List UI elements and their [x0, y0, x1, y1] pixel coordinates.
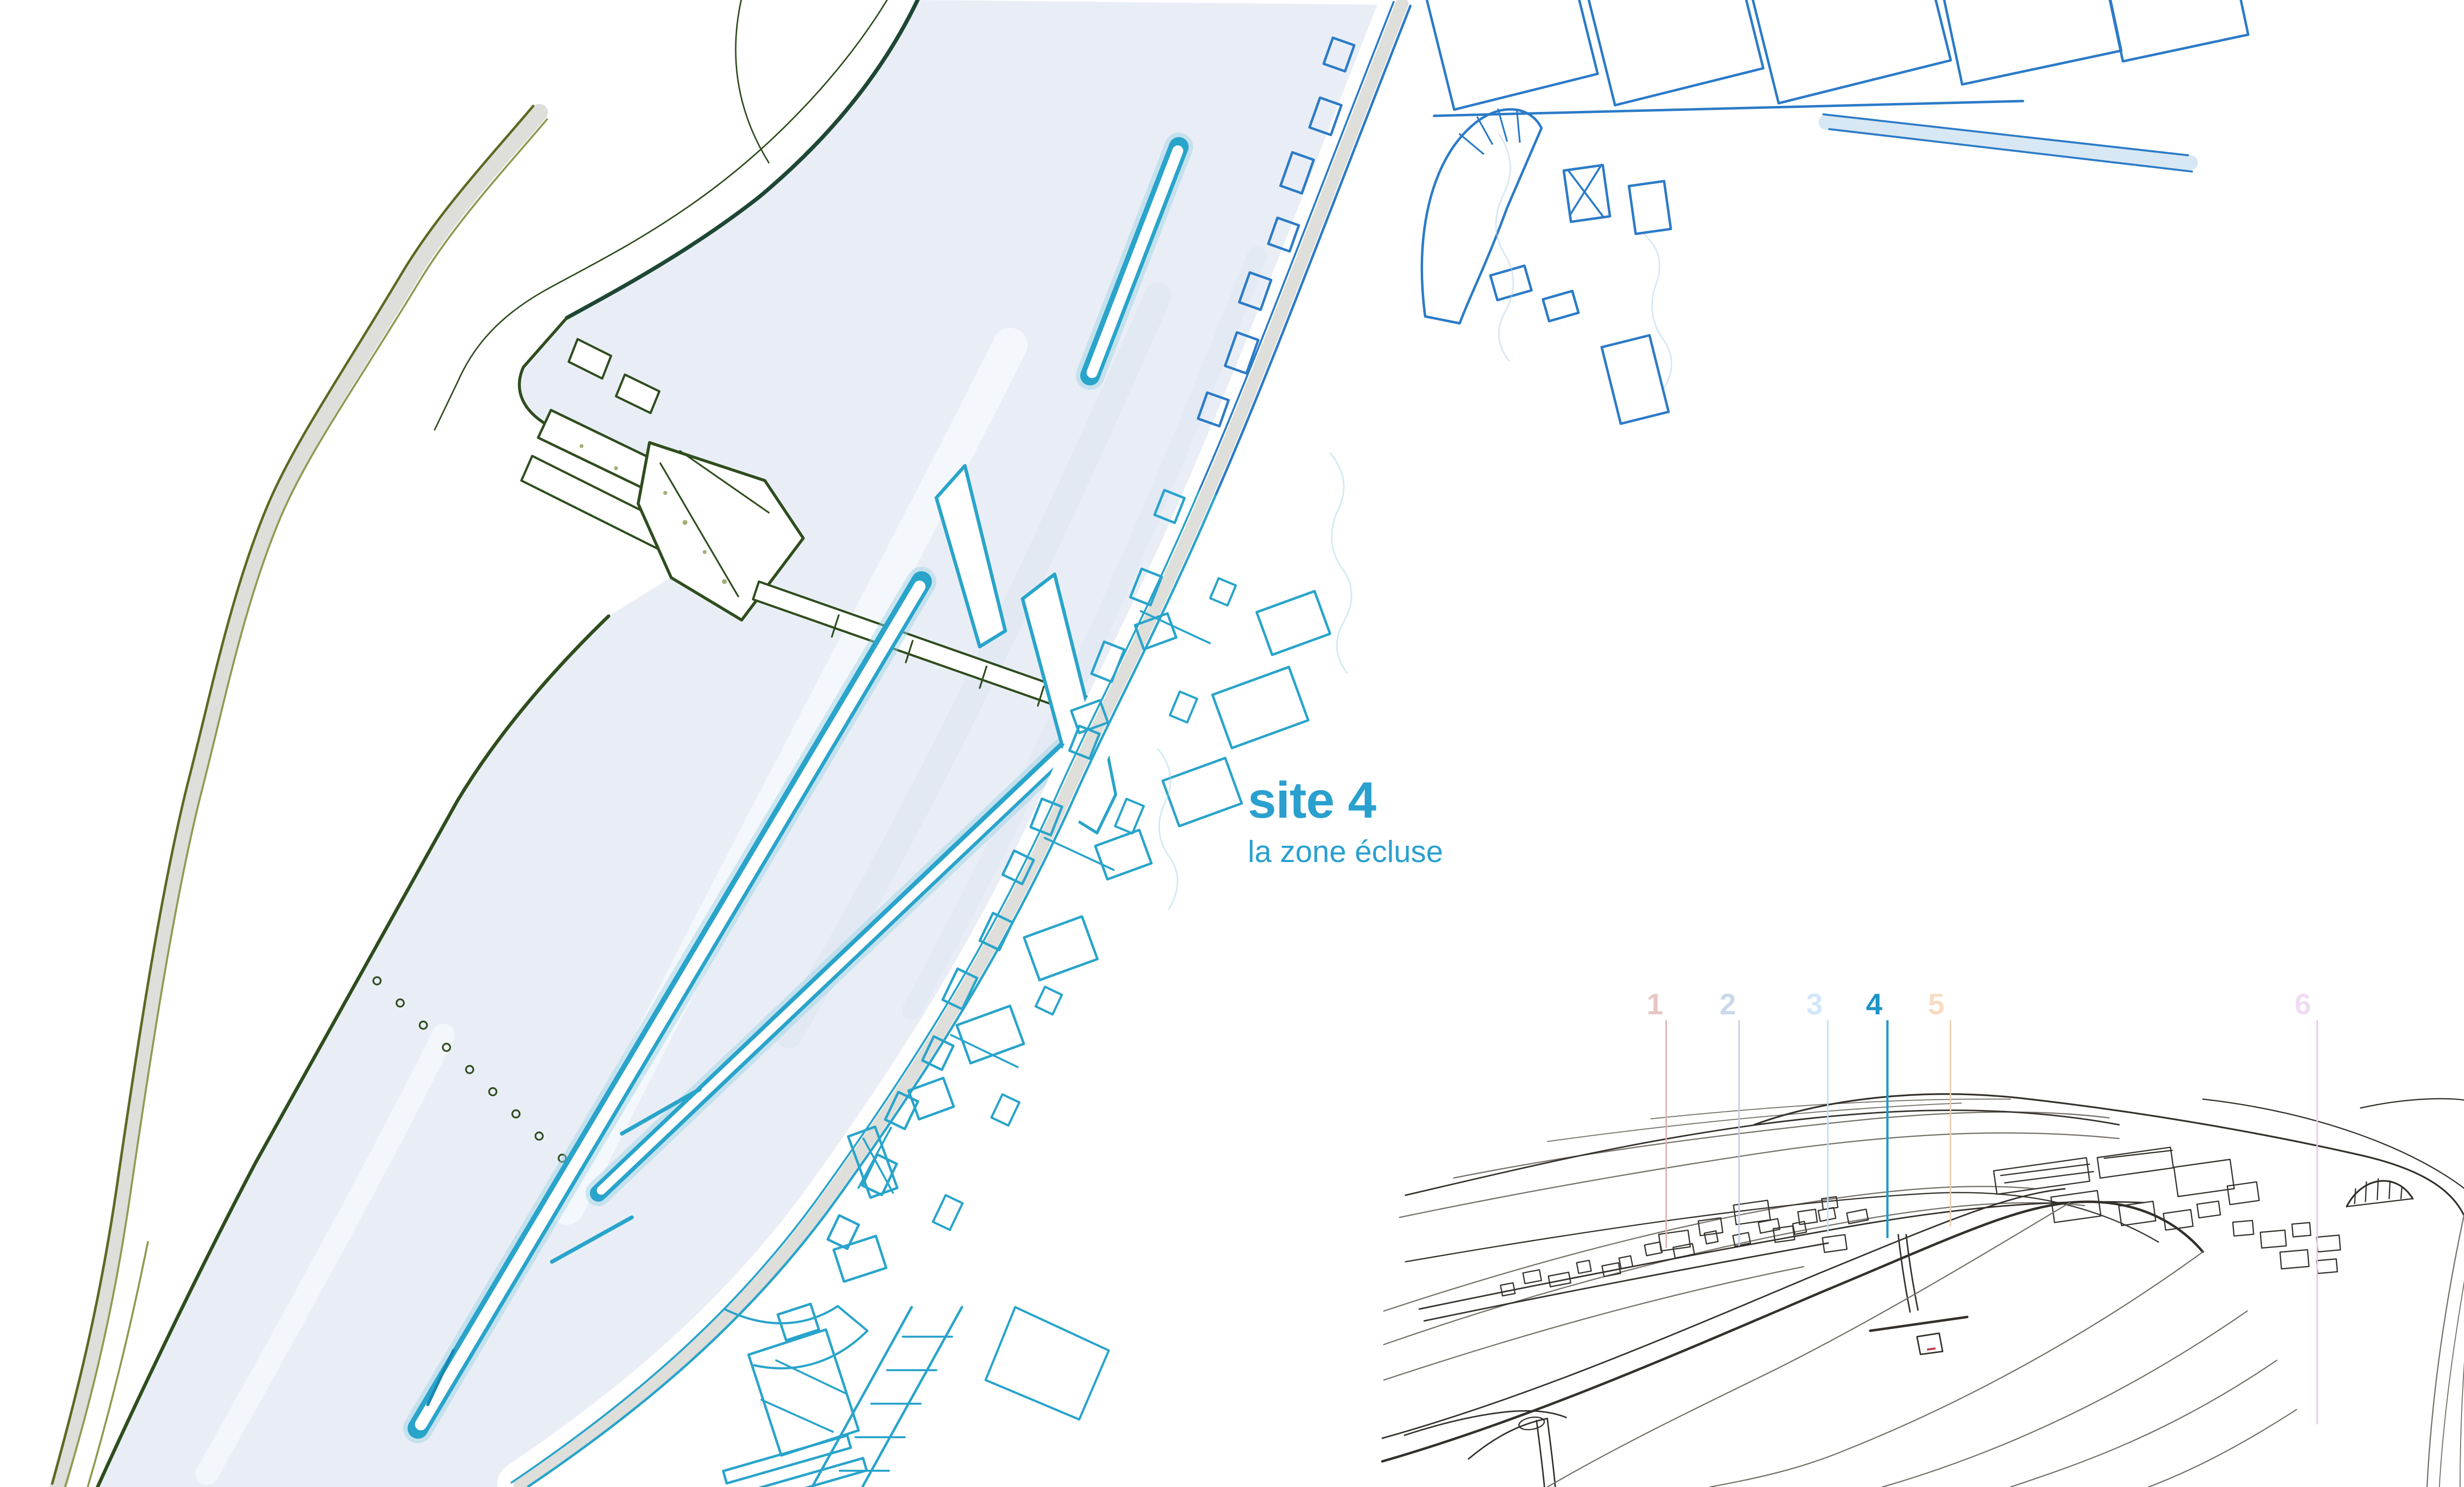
marker-6: 6 — [2294, 988, 2317, 1424]
building — [1490, 266, 1532, 300]
building — [933, 1195, 962, 1230]
building — [1644, 1242, 1662, 1256]
sweep-right-b — [2460, 1222, 2464, 1487]
squiggle-a — [1496, 134, 1513, 361]
marker-3-label: 3 — [1806, 988, 1822, 1021]
building — [2233, 1220, 2254, 1236]
building — [992, 1094, 1020, 1125]
map-title-block: site 4 la zone écluse — [1248, 775, 1443, 867]
building — [1994, 1158, 2090, 1194]
marker-1-label: 1 — [1646, 988, 1663, 1021]
building — [2317, 1235, 2340, 1252]
inset-town-cluster — [2233, 1220, 2340, 1273]
building — [1210, 578, 1236, 605]
inset-markers: 1 2 3 4 5 6 — [1646, 988, 2317, 1424]
building — [1212, 667, 1308, 748]
squiggle-d — [1158, 749, 1178, 909]
building — [1818, 1208, 1836, 1221]
building — [1619, 1256, 1633, 1269]
blue-lone-square — [1602, 335, 1669, 423]
building — [1745, 0, 1951, 103]
building — [1583, 0, 1763, 105]
contour-1 — [1384, 1203, 2085, 1345]
striped-sheds — [723, 1435, 866, 1487]
site-title: site 4 — [1248, 775, 1443, 826]
building — [2280, 1250, 2309, 1269]
crossed-box-blue — [1564, 165, 1610, 222]
inset-sketch — [1382, 1094, 2464, 1487]
strip-road — [1419, 1202, 2144, 1321]
building — [2292, 1222, 2311, 1237]
sweep-3 — [1882, 1311, 2247, 1487]
site-plan-canvas: 1 2 3 4 5 6 site 4 la zone écluse — [0, 0, 2464, 1487]
inset-junction — [1404, 1411, 1566, 1487]
sweep-1 — [1547, 1203, 2070, 1487]
building — [834, 1236, 887, 1281]
quay-shore-parallel — [1382, 1189, 2065, 1438]
building — [1543, 291, 1578, 321]
hook-street — [1422, 109, 1541, 323]
inset-factory-cluster — [1994, 1147, 2259, 1230]
building — [2197, 1201, 2220, 1218]
building — [1523, 1270, 1541, 1283]
building — [1576, 1260, 1591, 1273]
wash-streak — [1826, 122, 2190, 163]
inset-lock — [1870, 1235, 1967, 1354]
marker-2-label: 2 — [1719, 988, 1736, 1021]
top-row-street — [1434, 101, 2023, 116]
quay-shore — [1382, 1202, 2203, 1461]
hill-outline — [2203, 1099, 2464, 1193]
building — [1163, 758, 1241, 826]
coastline-top-wiggle — [736, 0, 769, 163]
building — [1024, 916, 1097, 980]
marker-2: 2 — [1719, 988, 1739, 1246]
marker-6-label: 6 — [2294, 988, 2311, 1021]
building — [1423, 0, 1598, 109]
site-subtitle: la zone écluse — [1248, 837, 1443, 867]
marker-5: 5 — [1928, 988, 1951, 1226]
marker-5-label: 5 — [1928, 988, 1944, 1021]
building — [2227, 1182, 2259, 1205]
building — [1115, 799, 1144, 833]
building — [2260, 1230, 2287, 1248]
inset-bridge — [2347, 1179, 2413, 1207]
building — [2098, 0, 2248, 61]
building — [1036, 987, 1062, 1014]
parcel-ladder — [812, 1307, 962, 1487]
building — [1704, 1231, 1718, 1244]
inset-building-row-left — [1501, 1260, 1621, 1296]
sweep-right-a — [2427, 1193, 2464, 1487]
building — [1170, 692, 1197, 723]
sweep-2 — [1710, 1252, 2203, 1487]
building — [2317, 1259, 2337, 1273]
blue-building-annex — [1629, 181, 1671, 234]
marker-3: 3 — [1806, 988, 1828, 1233]
marker-4-label: 4 — [1866, 988, 1882, 1021]
squiggle-c — [1331, 453, 1352, 673]
building — [1095, 830, 1152, 879]
building — [1257, 591, 1330, 655]
building — [1935, 0, 2122, 84]
sweep-5 — [2149, 1410, 2296, 1487]
parcel-outline-b — [986, 1307, 1109, 1419]
building — [2163, 1210, 2193, 1230]
building — [1659, 1230, 1690, 1251]
building — [2174, 1159, 2234, 1196]
map-drawing: 1 2 3 4 5 6 — [0, 0, 2464, 1487]
